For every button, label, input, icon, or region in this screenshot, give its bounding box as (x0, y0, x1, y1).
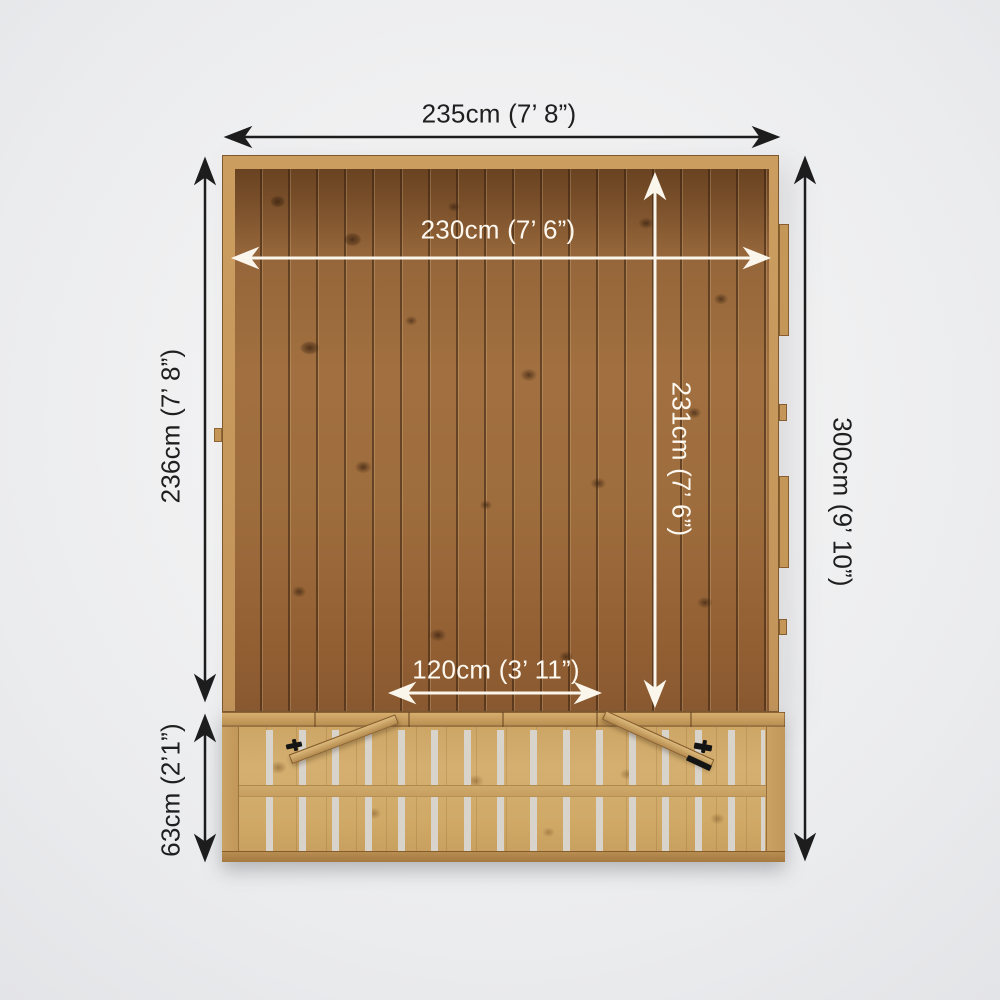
dim-label-overall-depth: 300cm (9’ 10”) (827, 417, 858, 586)
right-wall-window-frame (779, 224, 789, 336)
arrowhead-icon (227, 129, 249, 146)
dim-label-door-opening-width: 120cm (3’ 11”) (412, 655, 580, 686)
right-wall-notch (779, 404, 787, 421)
veranda-deck (222, 712, 785, 862)
veranda-left-post (222, 727, 239, 862)
veranda-right-post (766, 727, 785, 862)
right-wall-window-frame (779, 476, 789, 568)
left-wall-notch (214, 428, 222, 442)
arrowhead-icon (797, 159, 814, 181)
arrowhead-icon (197, 717, 214, 739)
arrowhead-icon (197, 677, 214, 699)
dim-label-external-depth: 236cm (7’ 8”) (156, 349, 187, 504)
front-wall-plate (222, 712, 785, 727)
deck-joist (222, 785, 785, 797)
dim-label-internal-width: 230cm (7’ 6”) (421, 215, 576, 246)
arrowhead-icon (797, 836, 814, 858)
dim-label-veranda-depth: 63cm (2’1”) (156, 723, 187, 857)
arrowhead-icon (197, 160, 214, 182)
diagram-canvas: 235cm (7’ 8”) 230cm (7’ 6”) 236cm (7’ 8”… (0, 0, 1000, 1000)
arrowhead-icon (197, 837, 214, 859)
arrowhead-icon (755, 129, 777, 146)
right-wall-notch (779, 619, 787, 635)
dim-label-external-width: 235cm (7’ 8”) (422, 99, 577, 130)
dim-label-internal-depth: 231cm (7’ 6”) (666, 382, 697, 537)
veranda-front-rail (222, 851, 785, 862)
